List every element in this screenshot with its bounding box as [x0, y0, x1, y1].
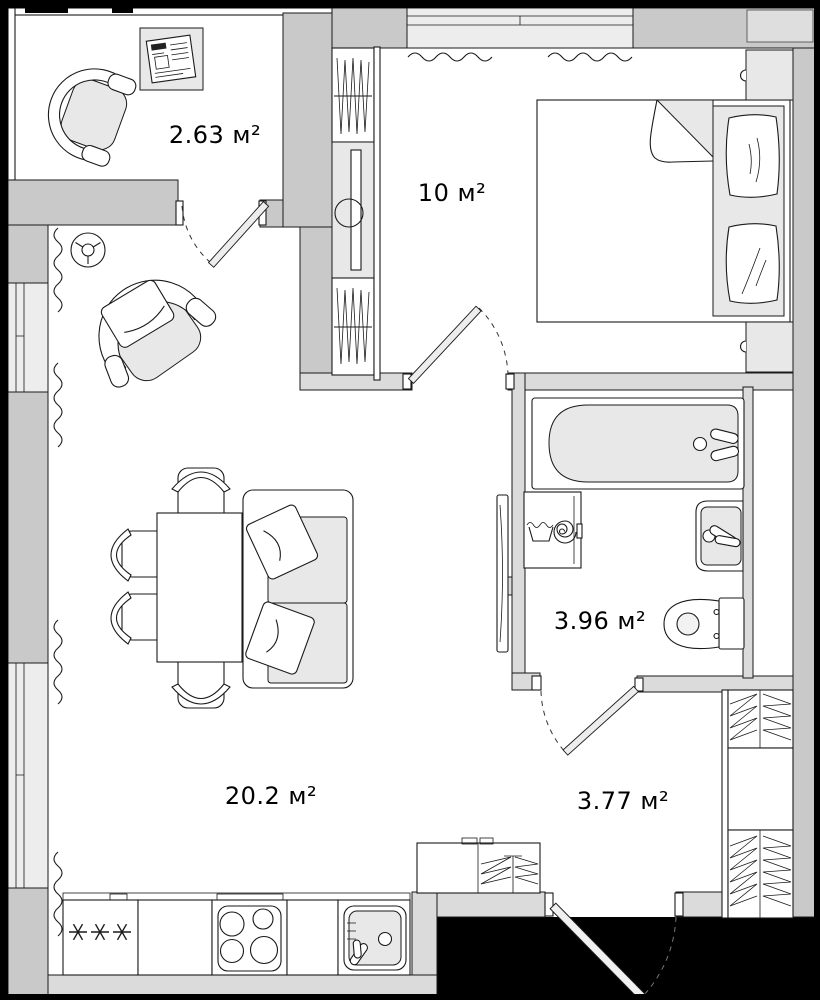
kitchen-units: [63, 893, 410, 975]
floor-plan-drawing: [0, 0, 820, 1000]
door-jamb: [675, 893, 683, 916]
wash-basin-icon: [696, 501, 743, 571]
fridge-icon: [63, 894, 138, 975]
wall: [8, 888, 48, 997]
kitchen-sink-icon: [338, 900, 410, 975]
nightstand-icon: [741, 50, 794, 100]
partition-wall: [512, 373, 525, 690]
entry-cabinet-icon: [417, 838, 540, 893]
counter: [287, 900, 338, 975]
wall: [332, 8, 407, 48]
area-label-bedroom: 10 м²: [418, 179, 486, 207]
wall: [8, 225, 48, 283]
door-jamb: [532, 676, 541, 690]
wardrobe-hanging-icon: [332, 278, 374, 375]
counter: [138, 900, 212, 975]
sofa-icon: [243, 490, 353, 688]
door-jamb: [403, 374, 411, 389]
wall: [283, 13, 332, 227]
floor-plan-canvas: 2.63 м² 10 м² 3.96 м² 20.2 м² 3.77 м²: [0, 0, 820, 1000]
wardrobe-hanging-icon: [332, 48, 374, 142]
area-label-living-kitchen: 20.2 м²: [225, 782, 317, 810]
wall: [300, 227, 332, 373]
dining-table-icon: [157, 513, 242, 662]
pillow-icon: [726, 224, 779, 304]
wall: [793, 48, 817, 917]
bed-icon: [537, 100, 790, 322]
storage-shelf-icon: [728, 830, 793, 918]
nightstand-icon: [741, 322, 794, 372]
storage-shelf-icon: [728, 690, 793, 748]
washing-machine-icon: [524, 492, 582, 568]
newspaper-table-icon: [140, 28, 203, 90]
window: [8, 283, 48, 392]
wardrobe-side: [722, 690, 728, 918]
area-label-hallway: 3.77 м²: [577, 787, 669, 815]
mirror-cabinet-icon: [332, 142, 374, 278]
wardrobe-side: [374, 47, 380, 380]
balcony-glazing-left: [8, 8, 15, 180]
bathtub-icon: [532, 398, 744, 489]
pillow-icon: [726, 115, 779, 198]
stove-icon: [212, 894, 287, 975]
door-jamb: [176, 201, 183, 225]
partition-wall: [48, 975, 437, 997]
area-label-balcony: 2.63 м²: [169, 121, 261, 149]
toilet-icon: [664, 598, 744, 649]
window: [407, 8, 633, 48]
door-jamb: [506, 374, 514, 389]
door-jamb: [545, 893, 553, 916]
storage-cabinet: [728, 748, 793, 830]
wall: [8, 180, 178, 225]
wall-inset: [747, 10, 813, 42]
wall: [8, 392, 48, 663]
ceiling-fan-icon: [71, 233, 105, 267]
window: [8, 663, 48, 888]
area-label-bathroom: 3.96 м²: [554, 607, 646, 635]
